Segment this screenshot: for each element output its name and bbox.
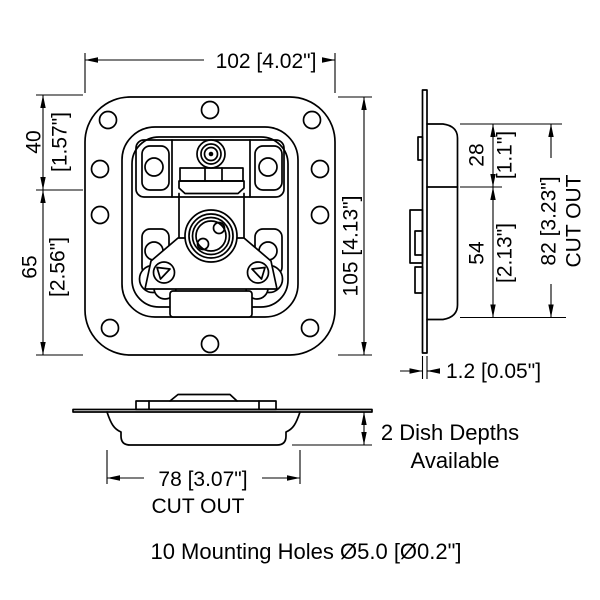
mounting-holes-note: 10 Mounting Holes Ø5.0 [Ø0.2"]: [150, 539, 461, 564]
dim-thickness-label: 1.2 [0.05"]: [446, 360, 541, 383]
dim-82-label: 82 [3.23"]: [538, 176, 561, 265]
dim-54-in: [2.13"]: [494, 223, 517, 283]
pivot-housing: [179, 181, 244, 194]
mounting-hole: [302, 320, 319, 337]
mounting-hole: [202, 336, 219, 353]
dim-28-in: [1.1"]: [494, 131, 517, 179]
screw: [154, 262, 175, 283]
mounting-hole: [304, 112, 321, 129]
depth-note-line1: 2 Dish Depths: [381, 420, 519, 445]
side-view: [410, 90, 458, 353]
screw: [248, 262, 269, 283]
mounting-hole: [202, 102, 219, 119]
latch-housing-profile: [136, 401, 276, 410]
bottom-view: [73, 395, 372, 446]
mounting-hole: [92, 207, 109, 224]
bracket-cells: [180, 168, 243, 181]
cutout-label: CUT OUT: [152, 495, 245, 518]
depth-note-line2: Available: [411, 448, 500, 473]
rivet-center: [209, 152, 214, 157]
dim-65-mm: 65: [19, 255, 42, 278]
latch-technical-drawing: 102 [4.02"] 105 [4.13"] 40 [1.57"] 65 [2…: [0, 0, 600, 600]
dim-40-in: [1.57"]: [49, 112, 72, 172]
latch-tab: [170, 291, 252, 317]
front-view: [85, 97, 335, 355]
latch-tab-profile: [418, 137, 423, 160]
mounting-hole: [312, 207, 329, 224]
mounting-hole: [92, 161, 109, 178]
latch-detail-profile: [415, 231, 423, 255]
bracket-ear: [142, 146, 169, 190]
mounting-hole: [312, 161, 329, 178]
mounting-hole: [102, 320, 119, 337]
latch-detail-profile: [415, 267, 423, 293]
dim-78-label: 78 [3.07"]: [158, 468, 247, 491]
bottom-view-dimensions: 2 Dish Depths Available 78 [3.07"] CUT O…: [107, 412, 519, 518]
latch-hump-profile: [170, 395, 237, 402]
technical-drawing-page: 102 [4.02"] 105 [4.13"] 40 [1.57"] 65 [2…: [0, 0, 600, 600]
dim-width-label: 102 [4.02"]: [216, 50, 317, 73]
dish-bottom-profile: [107, 412, 300, 445]
dish-profile: [427, 124, 458, 320]
dim-82-cutout-label: CUT OUT: [563, 174, 586, 267]
dim-height-label: 105 [4.13"]: [340, 196, 363, 297]
mounting-hole: [100, 112, 117, 129]
dim-65-in: [2.56"]: [47, 237, 70, 297]
dim-40-mm: 40: [23, 130, 46, 153]
dim-54-mm: 54: [466, 241, 489, 265]
dim-28-mm: 28: [466, 143, 489, 166]
latch-body: [140, 194, 283, 318]
latch-top-bracket: [136, 140, 284, 197]
